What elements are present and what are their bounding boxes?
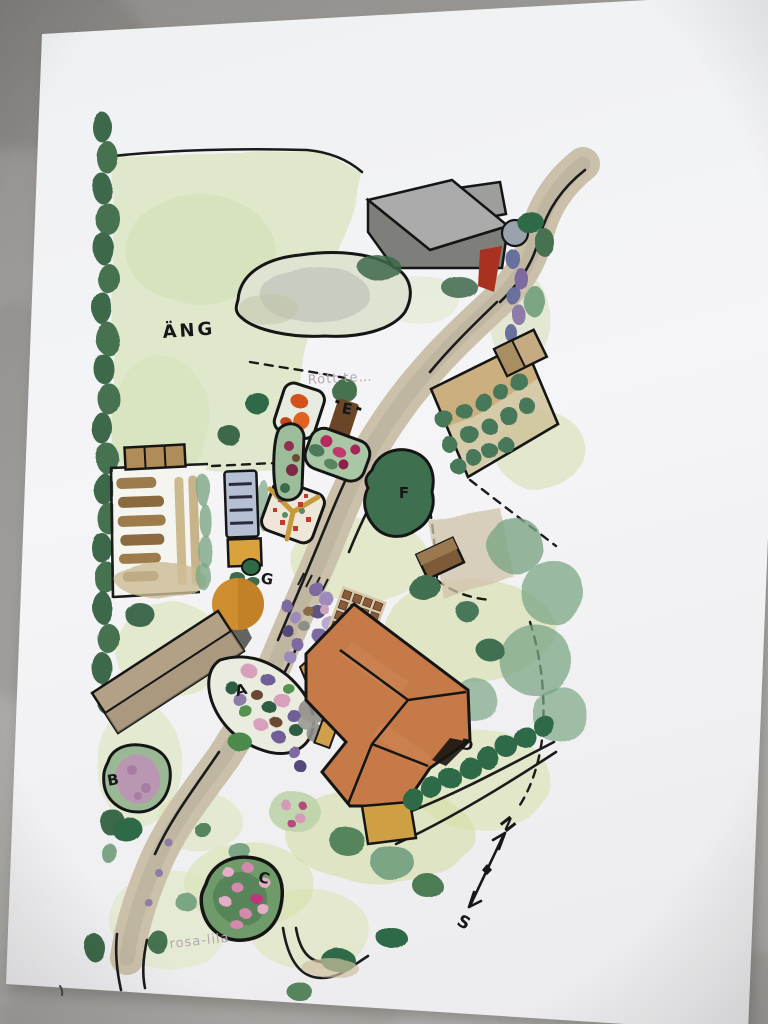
photo-vignette [0, 0, 768, 1024]
map-canvas: ÄNG Rött te… rosa-lila E F G A B C D N S [0, 0, 768, 1024]
garden-map-photo: ÄNG Rött te… rosa-lila E F G A B C D N S [0, 0, 768, 1024]
